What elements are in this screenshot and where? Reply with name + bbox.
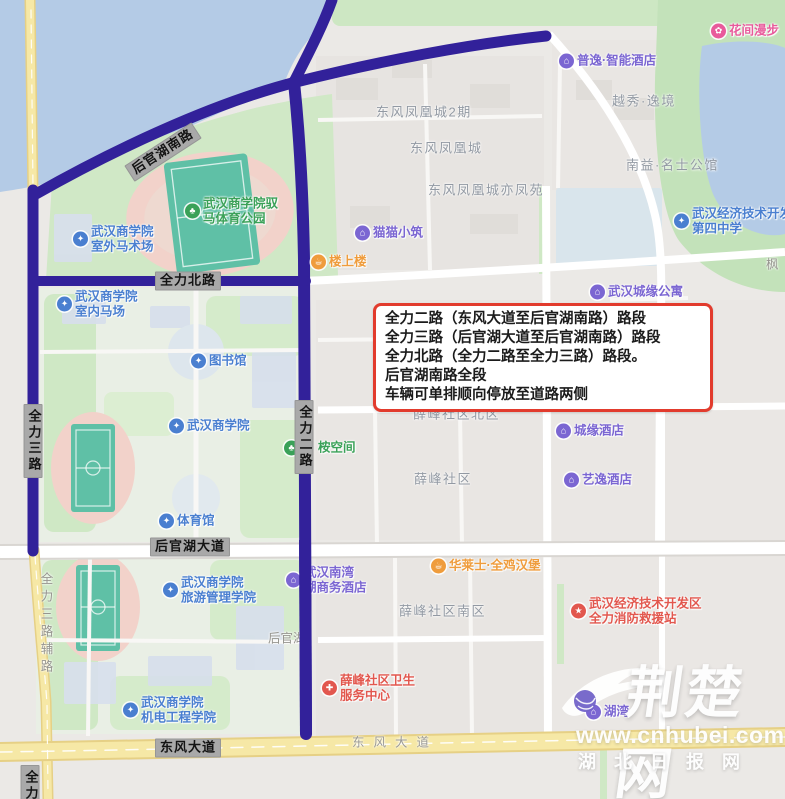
area-label-xuefeng-community: 薛峰社区 — [414, 469, 472, 488]
area-label-yuexiu-yijing: 越秀·逸境 — [612, 91, 676, 110]
poi-label: 花间漫步 — [729, 24, 779, 39]
poi-label: 猫猫小筑 — [373, 226, 423, 241]
fire-icon: ★ — [571, 604, 586, 619]
poi-label: 艺逸酒店 — [582, 473, 632, 488]
poi-mech-engineering-college[interactable]: ✦武汉商学院机电工程学院 — [123, 696, 216, 725]
poi-label: 湖湾 — [604, 705, 629, 720]
poi-label: 武汉商学院室内马场 — [75, 290, 138, 319]
poi-label: 普逸·智能酒店 — [577, 54, 656, 69]
poi-puyi-smart-hotel[interactable]: ⌂普逸·智能酒店 — [559, 54, 656, 69]
poi-label: 武汉商学院 — [187, 419, 250, 434]
map-viewport[interactable]: 后官湖⌂武汉南湾湖商务酒店 后官湖南路全力北路全力三路全力二路后官湖大道东风大道… — [0, 0, 785, 799]
school-icon: ✦ — [191, 354, 206, 369]
school-icon: ✦ — [57, 297, 72, 312]
school-icon: ✦ — [73, 232, 88, 247]
poi-yiyi-hotel[interactable]: ⌂艺逸酒店 — [564, 473, 632, 488]
notice-line: 全力二路（东风大道至后官湖南路）路段 — [385, 310, 701, 329]
poi-chengyuan-hotel[interactable]: ⌂城缘酒店 — [556, 424, 624, 439]
hotel-icon: ⌂ — [559, 54, 574, 69]
hotel-icon: ⌂ — [556, 424, 571, 439]
poi-label: 华莱士·全鸡汉堡 — [449, 559, 541, 574]
area-label-nanyi-mingshi-mansion: 南益·名士公馆 — [626, 155, 719, 174]
poi-label: 图书馆 — [209, 354, 247, 369]
poi-library[interactable]: ✦图书馆 — [191, 354, 247, 369]
poi-label: 楼上楼 — [329, 255, 367, 270]
poi-label: 武汉商学院机电工程学院 — [141, 696, 216, 725]
area-label-dongfeng-phoenix-city-2: 东风凤凰城2期 — [376, 102, 472, 121]
poi-label: 武汉经济技术开发区全力消防救援站 — [589, 597, 702, 626]
hotel-icon: ⌂ — [355, 226, 370, 241]
poi-yuma-sports-park[interactable]: ♣武汉商学院驭马体育公园 — [185, 197, 278, 226]
school-icon: ✦ — [159, 514, 174, 529]
poi-huwan[interactable]: ⌂湖湾 — [586, 705, 629, 720]
road-label-houguanhu-south-rd: 后官湖南路 — [124, 122, 201, 181]
road-label-quanli-north-rd: 全力北路 — [155, 272, 221, 291]
poi-chengyuan-apartment[interactable]: ⌂武汉城缘公寓 — [590, 285, 683, 300]
poi-label: 桉空间 — [318, 441, 356, 456]
poi-wuhan-business-university[interactable]: ✦武汉商学院 — [169, 419, 250, 434]
road-label-quanli-2nd-rd: 全力二路 — [295, 400, 314, 474]
flower-icon: ✿ — [711, 24, 726, 39]
area-label-dongfeng-phoenix-city: 东风凤凰城 — [410, 138, 483, 157]
hotel-icon: ⌂ — [564, 473, 579, 488]
poi-tourism-management-college[interactable]: ✦武汉商学院旅游管理学院 — [163, 576, 256, 605]
poi-label: 武汉商学院驭马体育公园 — [203, 197, 278, 226]
food-icon: ☕ — [311, 255, 326, 270]
poi-label: 体育馆 — [177, 514, 215, 529]
hotel-icon: ⌂ — [586, 705, 601, 720]
school-icon: ✦ — [674, 214, 689, 229]
poi-outdoor-equestrian-ground[interactable]: ✦武汉商学院室外马术场 — [73, 225, 154, 254]
notice-line: 全力北路（全力二路至全力三路）路段。 — [385, 348, 701, 367]
poi-label: 城缘酒店 — [574, 424, 624, 439]
road-label-dongfeng-ave: 东风大道 — [155, 739, 221, 758]
road-label-houguanhu-ave: 后官湖大道 — [150, 538, 230, 557]
area-label-xuefeng-community-south: 薛峰社区南区 — [399, 601, 486, 620]
notice-line: 后官湖南路全段 — [385, 367, 701, 386]
school-icon: ✦ — [123, 703, 138, 718]
poi-hualaishi-burger[interactable]: ☕华莱士·全鸡汉堡 — [431, 559, 541, 574]
poi-label: 武汉商学院室外马术场 — [91, 225, 154, 254]
poi-huajian-manbu[interactable]: ✿花间漫步 — [711, 24, 779, 39]
poi-label: 武汉经济技术开发区第四中学 — [692, 207, 785, 236]
poi-wedz-no4-middle-school[interactable]: ✦武汉经济技术开发区第四中学 — [674, 207, 785, 236]
poi-label: 武汉商学院旅游管理学院 — [181, 576, 256, 605]
poi-indoor-equestrian-hall[interactable]: ✦武汉商学院室内马场 — [57, 290, 138, 319]
poi-label: 薛峰社区卫生服务中心 — [340, 674, 415, 703]
road-text-feng-partial: 枫 — [766, 254, 779, 273]
road-label-quanli-clipped: 全力 — [21, 765, 40, 799]
poi-quanli-fire-rescue-station[interactable]: ★武汉经济技术开发区全力消防救援站 — [571, 597, 702, 626]
area-label-dongfeng-phoenix-yifengyuan: 东风凤凰城亦凤苑 — [428, 180, 544, 199]
poi-loushanglou[interactable]: ☕楼上楼 — [311, 255, 367, 270]
notice-line: 车辆可单排顺向停放至道路两侧 — [385, 386, 701, 405]
school-icon: ✦ — [169, 419, 184, 434]
health-icon: ✚ — [322, 681, 337, 696]
hotel-icon: ⌂ — [590, 285, 605, 300]
road-text-dongfeng-ave-text: 东风大道 — [352, 732, 438, 751]
parking-notice-box: 全力二路（东风大道至后官湖南路）路段 全力三路（后官湖大道至后官湖南路）路段 全… — [373, 303, 713, 412]
poi-label: 武汉城缘公寓 — [608, 285, 683, 300]
road-text-quanli-3rd-side-rd: 全力三路辅路 — [37, 572, 56, 677]
road-label-quanli-3rd-rd: 全力三路 — [24, 404, 43, 478]
poi-gymnasium[interactable]: ✦体育馆 — [159, 514, 215, 529]
notice-line: 全力三路（后官湖大道至后官湖南路）路段 — [385, 329, 701, 348]
food-icon: ☕ — [431, 559, 446, 574]
poi-maomao-xiaozhu[interactable]: ⌂猫猫小筑 — [355, 226, 423, 241]
poi-xuefeng-health-center[interactable]: ✚薛峰社区卫生服务中心 — [322, 674, 415, 703]
school-icon: ✦ — [163, 583, 178, 598]
park-icon: ♣ — [185, 204, 200, 219]
